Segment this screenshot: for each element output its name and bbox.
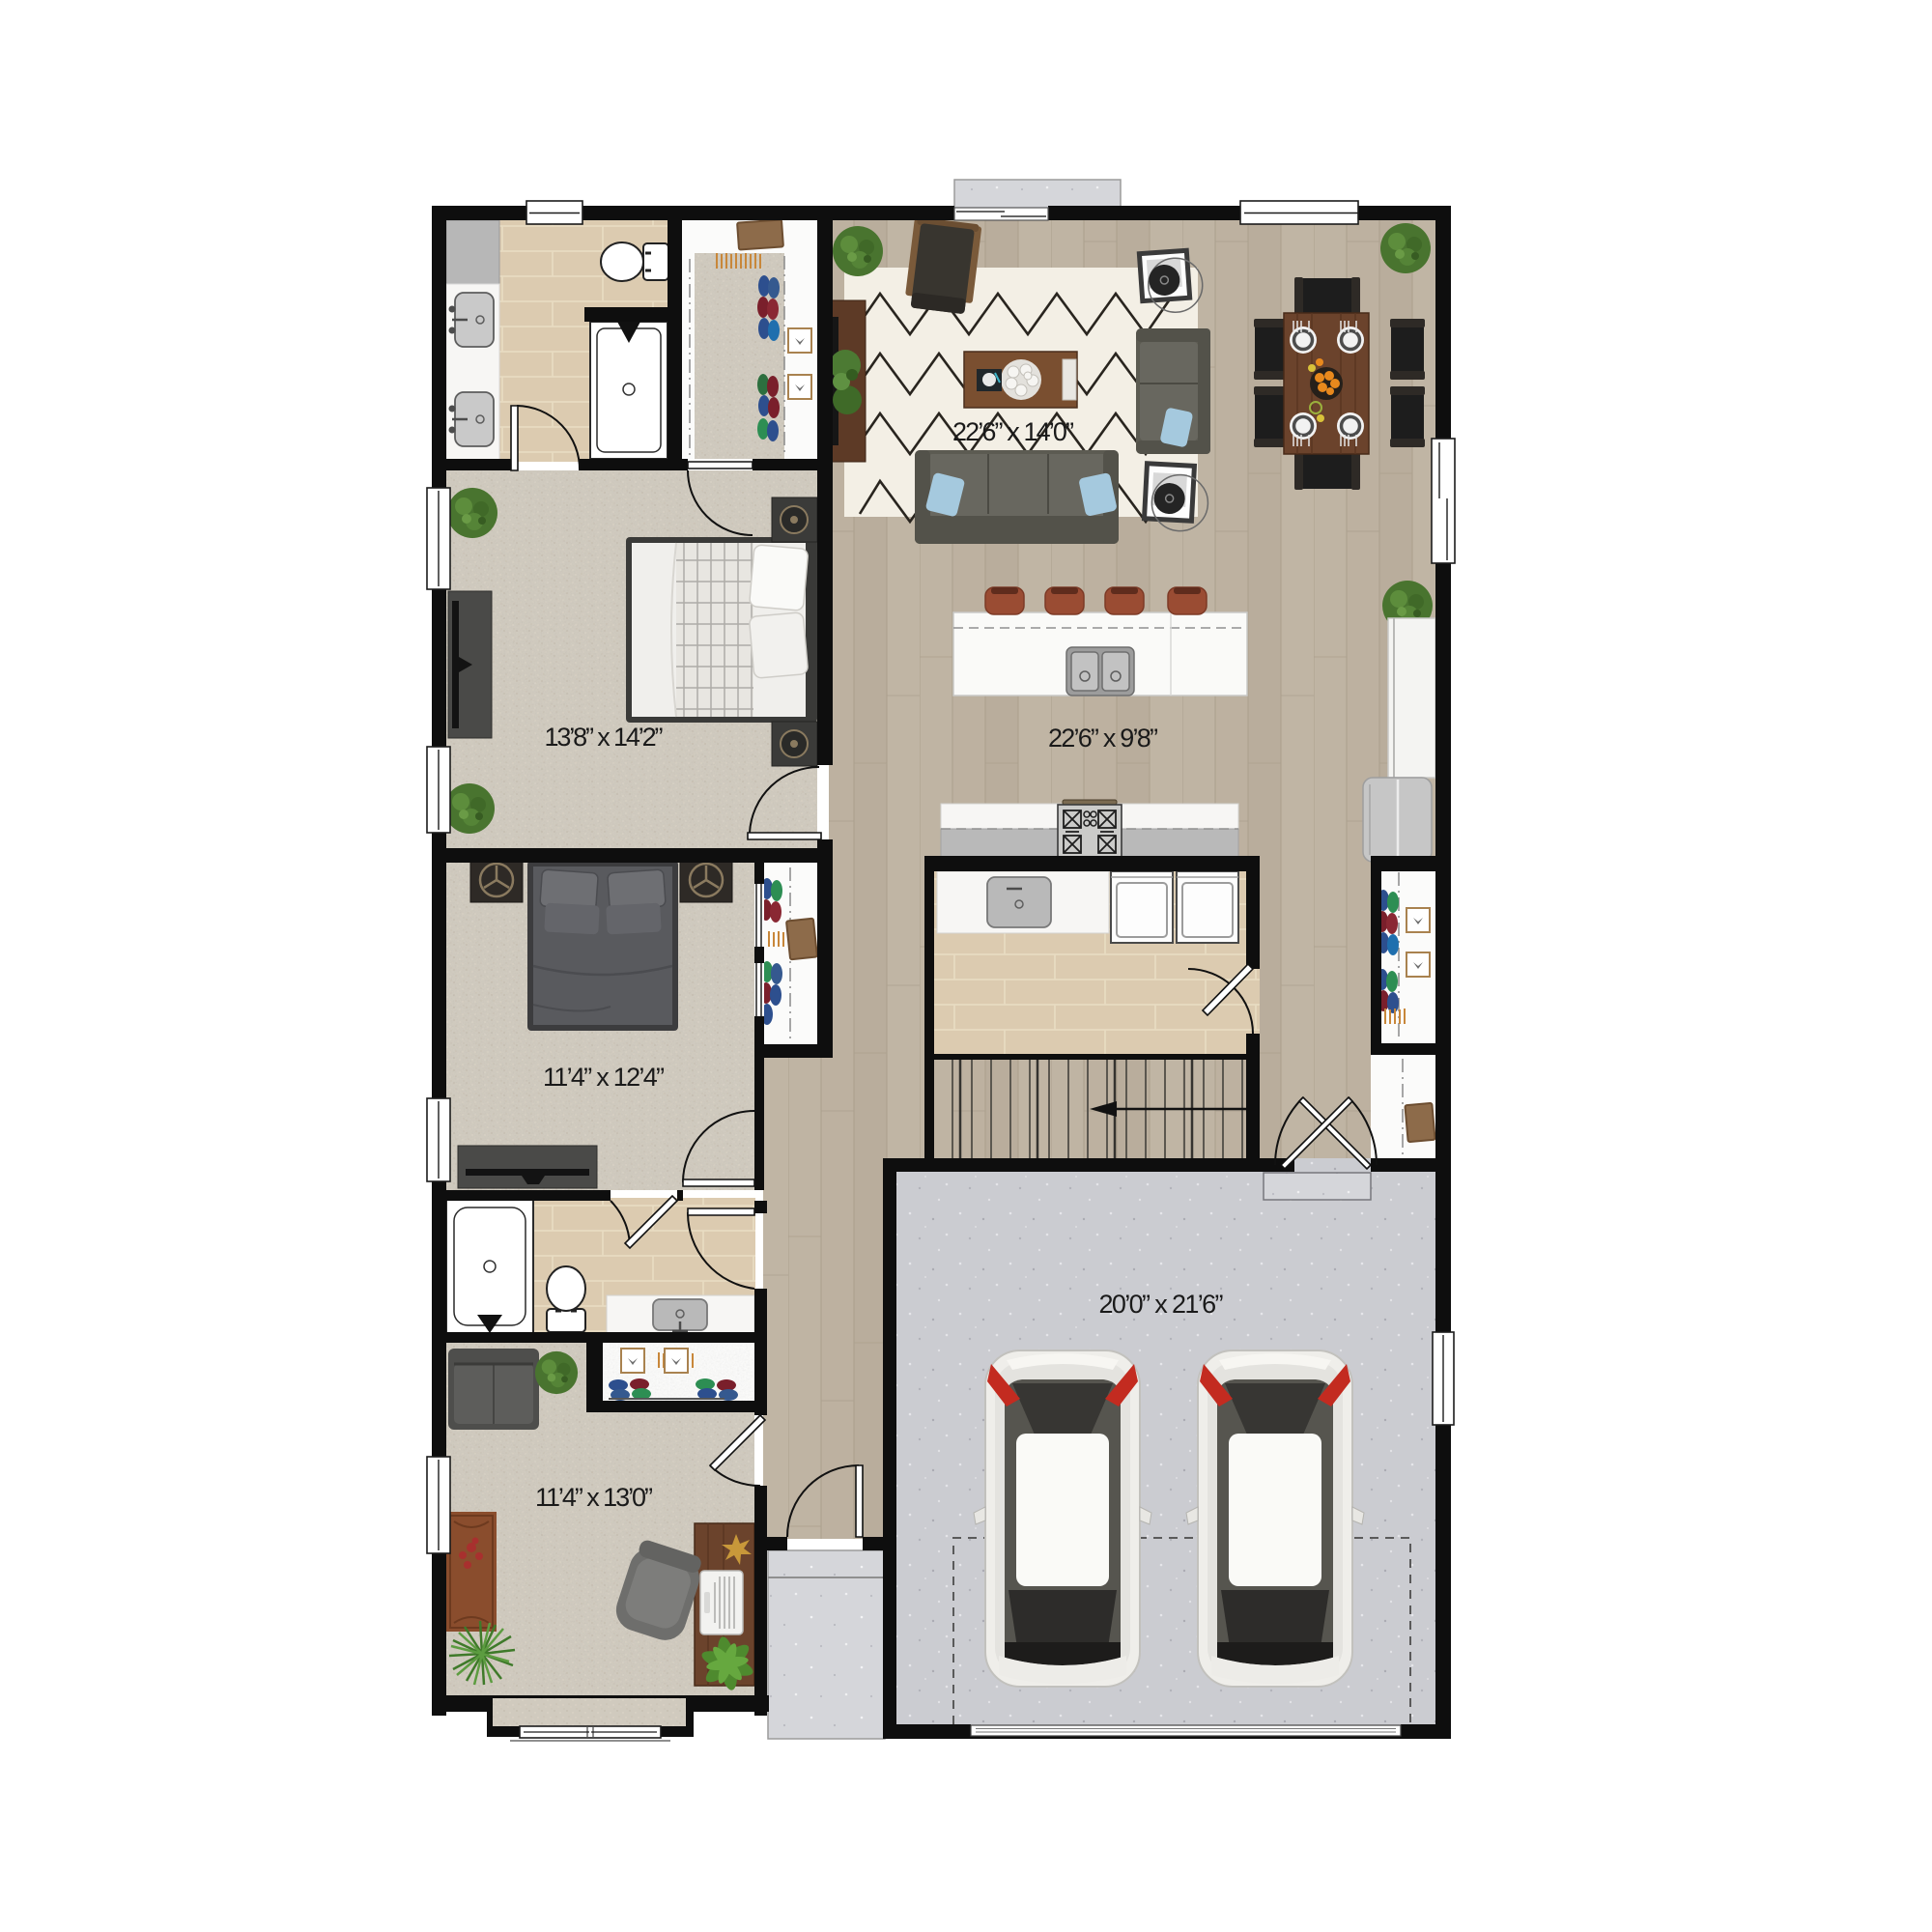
svg-text:22’6” x 9’8”: 22’6” x 9’8” bbox=[1048, 724, 1158, 753]
svg-text:11’4” x 13’0”: 11’4” x 13’0” bbox=[535, 1483, 653, 1512]
svg-text:20’0” x 21’6”: 20’0” x 21’6” bbox=[1099, 1290, 1224, 1319]
svg-text:22’6” x 14’0”: 22’6” x 14’0” bbox=[952, 417, 1074, 446]
svg-text:13’8” x 14’2”: 13’8” x 14’2” bbox=[545, 723, 664, 752]
svg-text:11’4” x 12’4”: 11’4” x 12’4” bbox=[543, 1063, 665, 1092]
